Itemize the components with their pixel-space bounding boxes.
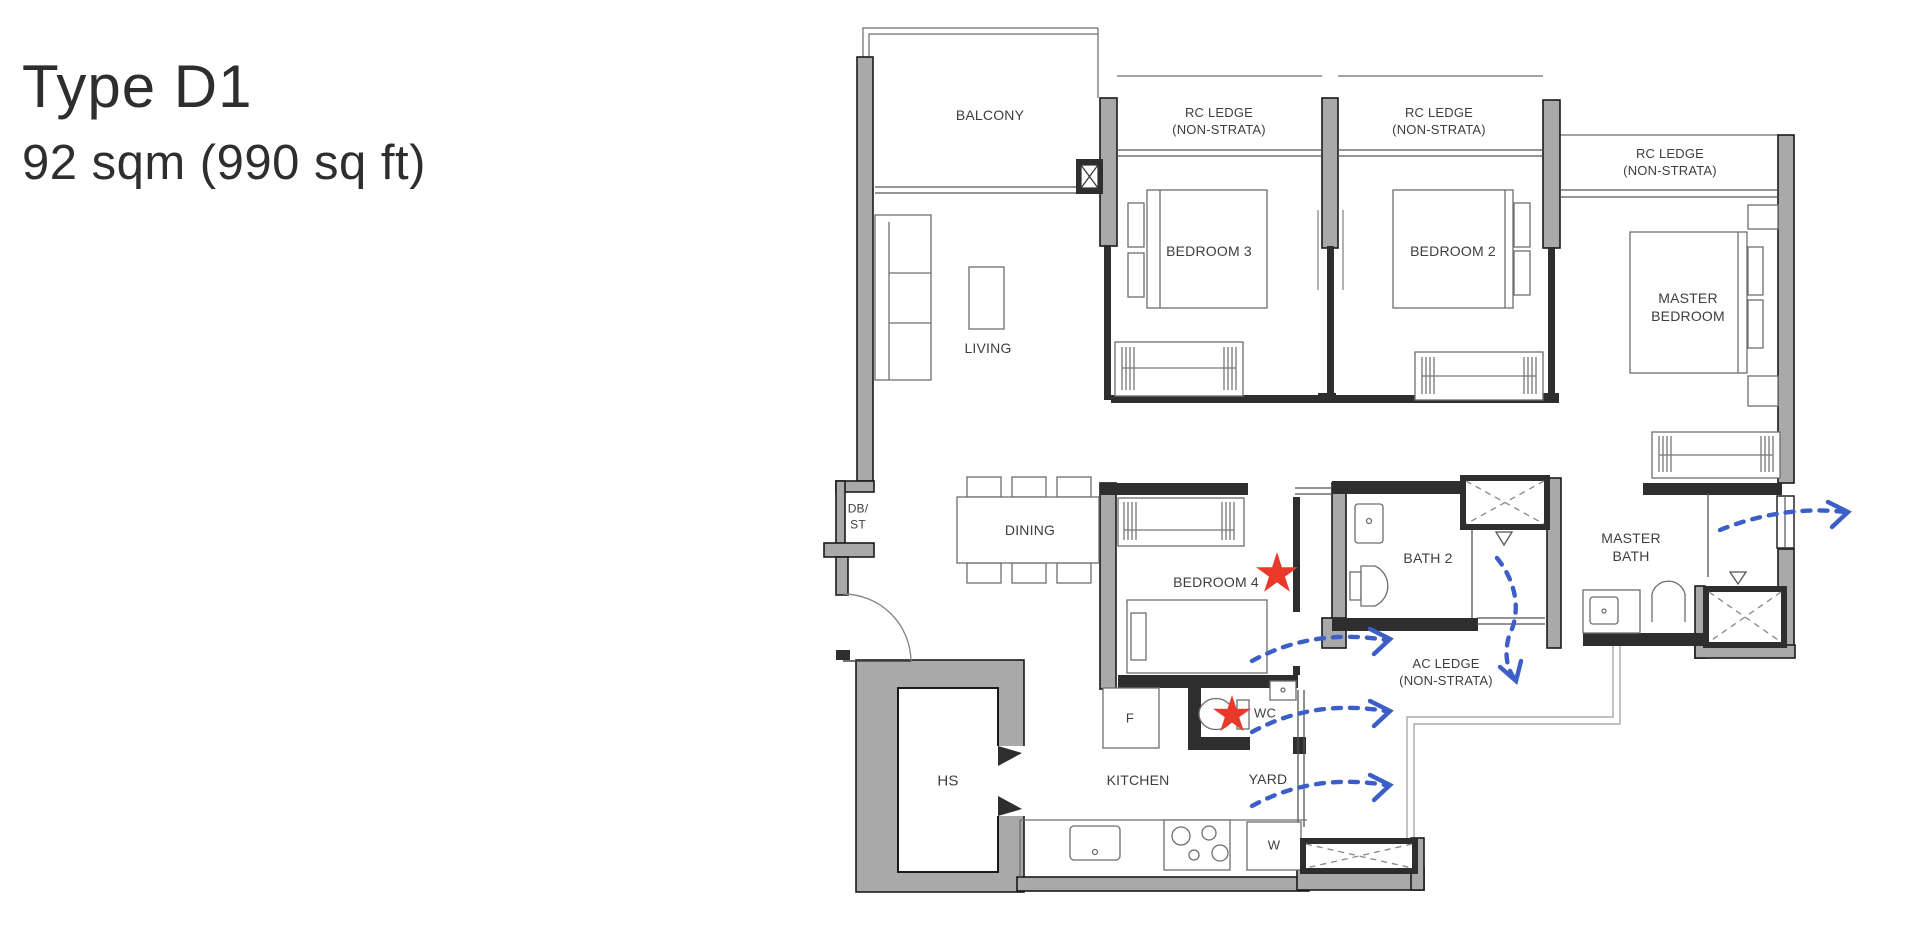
room-label-db-st: DB/ ST	[848, 501, 869, 532]
room-label-master-bath: MASTER BATH	[1601, 529, 1661, 565]
room-label-kitchen: KITCHEN	[1107, 771, 1170, 789]
room-label-rc-ledge-2: RC LEDGE (NON-STRATA)	[1392, 105, 1486, 139]
room-label-ac-ledge: AC LEDGE (NON-STRATA)	[1399, 656, 1493, 690]
plan-title: Type D1 92 sqm (990 sq ft)	[22, 52, 426, 191]
entry-door	[843, 594, 911, 662]
room-label-yard: YARD	[1249, 770, 1288, 788]
room-label-bedroom2: BEDROOM 2	[1410, 242, 1496, 260]
fixture-label-fridge: F	[1126, 711, 1134, 728]
room-label-living: LIVING	[964, 339, 1011, 357]
plan-type: Type D1	[22, 52, 426, 121]
floor-plan: Type D1 92 sqm (990 sq ft) BALCONY RC LE…	[0, 0, 1920, 940]
room-label-balcony: BALCONY	[956, 106, 1024, 124]
room-label-rc-ledge-1: RC LEDGE (NON-STRATA)	[1172, 105, 1266, 139]
room-label-rc-ledge-3: RC LEDGE (NON-STRATA)	[1623, 146, 1717, 180]
master-bath-window	[1777, 496, 1794, 548]
room-label-dining: DINING	[1005, 521, 1055, 539]
star-bedroom4	[1256, 552, 1298, 592]
room-label-master-bedroom: MASTER BEDROOM	[1651, 289, 1725, 325]
room-label-wc: WC	[1254, 706, 1276, 723]
room-label-bath2: BATH 2	[1403, 549, 1452, 567]
room-label-bedroom4: BEDROOM 4	[1173, 573, 1259, 591]
room-label-hs: HS	[937, 771, 958, 791]
fixture-label-washer: W	[1268, 838, 1280, 855]
room-label-bedroom3: BEDROOM 3	[1166, 242, 1252, 260]
plan-area: 92 sqm (990 sq ft)	[22, 135, 426, 191]
